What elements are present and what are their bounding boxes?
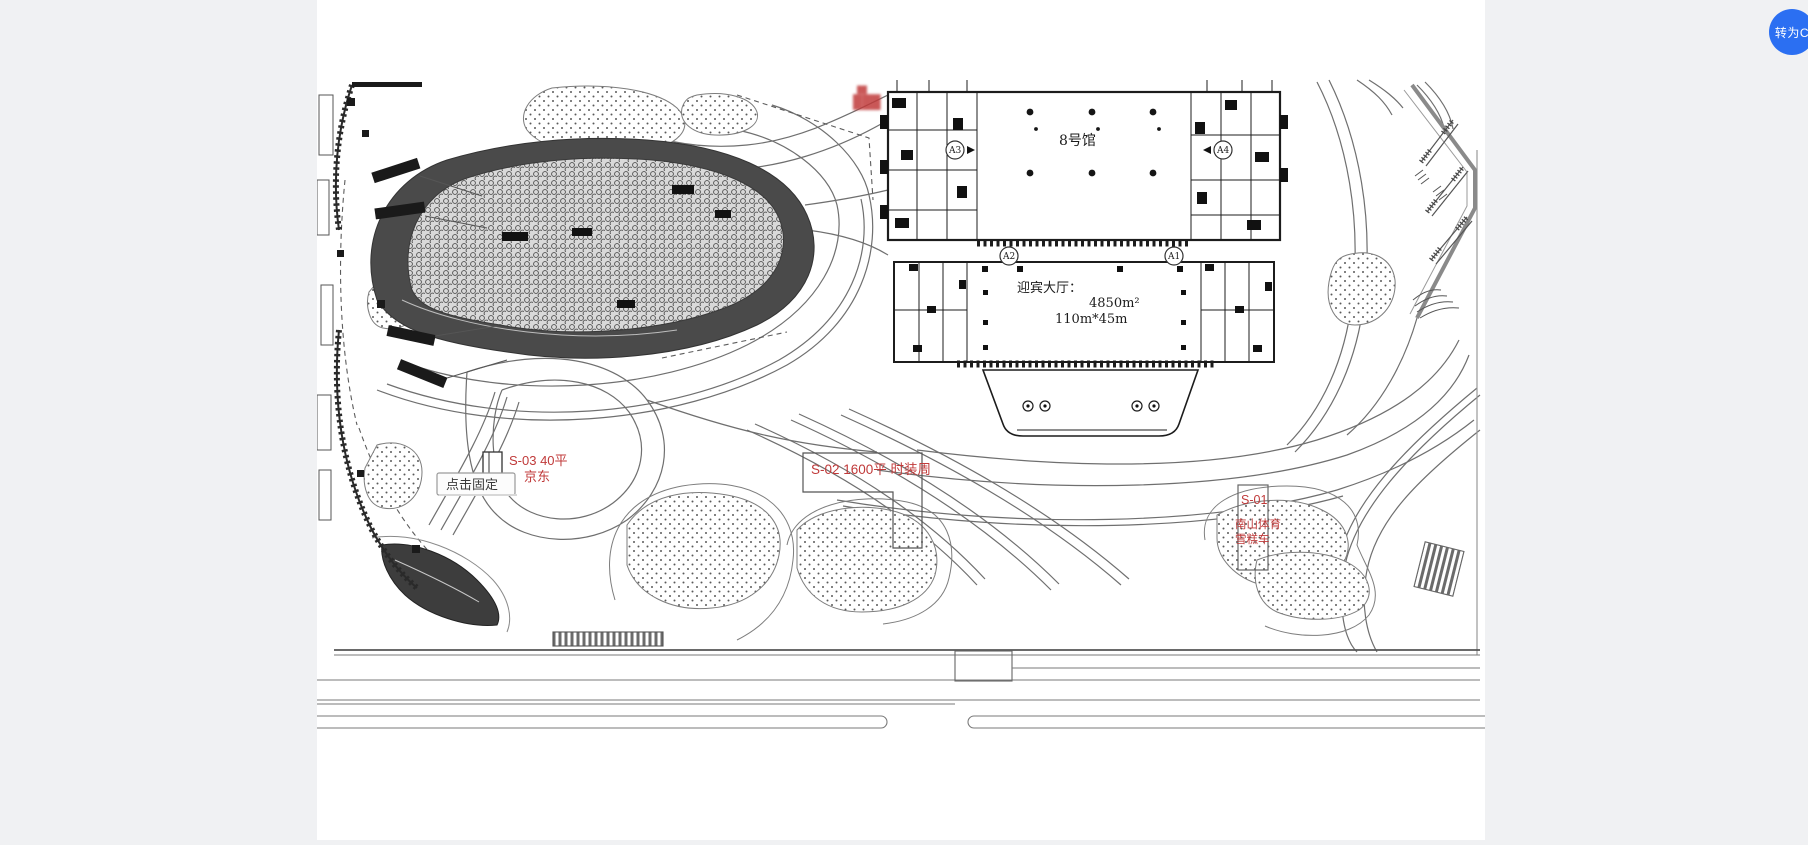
lobby-area: 4850m² (1089, 296, 1140, 311)
convert-to-cad-label: 转为C (1775, 24, 1808, 41)
booth-s03-name: 京东 (524, 469, 550, 484)
sunken-plaza (371, 138, 814, 358)
booth-s01-label: S-01 (1241, 493, 1267, 507)
tooltip-label: 点击固定 (446, 477, 498, 492)
site-plan-drawing[interactable]: 8号馆 迎宾大厅： 4850m² 110m*45m A3 A4 A2 A1 (317, 0, 1485, 840)
illegible-red-label: ██ ███ (853, 85, 881, 110)
convert-to-cad-button[interactable]: 转为C (1769, 9, 1808, 55)
hall-8-label: 8号馆 (1059, 133, 1096, 149)
axis-bubble-a2: A2 (1002, 252, 1015, 262)
booth-s01-name-line1: 南山体育 (1235, 517, 1281, 531)
lobby-title: 迎宾大厅： (1017, 280, 1082, 296)
booth-s02-label: S-02 1600平 时装周 (811, 462, 931, 477)
svg-text:███: ███ (853, 94, 881, 110)
berm-mound (372, 536, 510, 632)
axis-bubble-a1: A1 (1167, 252, 1180, 262)
booth-s01-name-line2: 雪糕车 (1235, 532, 1270, 546)
axis-bubble-a3: A3 (948, 146, 961, 156)
tooltip: 点击固定 (437, 473, 517, 496)
axis-bubble-a4: A4 (1216, 146, 1229, 156)
lobby-dimensions: 110m*45m (1055, 312, 1128, 327)
east-stair-structure (1404, 85, 1475, 318)
plan-canvas[interactable]: 8号馆 迎宾大厅： 4850m² 110m*45m A3 A4 A2 A1 (317, 0, 1485, 840)
booth-s03-label: S-03 40平 (509, 453, 568, 468)
